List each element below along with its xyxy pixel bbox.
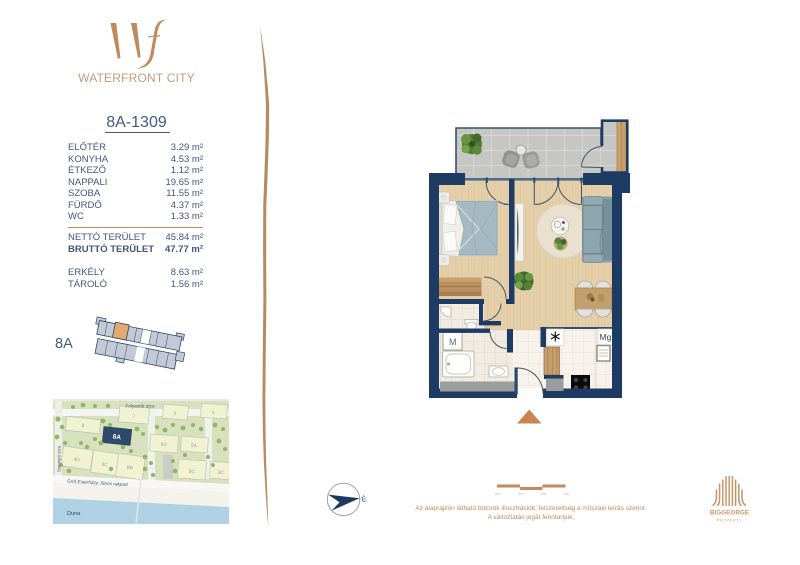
svg-text:3C: 3C [218, 470, 225, 476]
svg-text:M: M [449, 337, 457, 347]
svg-text:Folyamőr utca: Folyamőr utca [125, 404, 155, 409]
svg-text:Duna: Duna [67, 511, 81, 517]
svg-text:0m: 0m [495, 491, 501, 496]
svg-text:PROPERTY: PROPERTY [717, 518, 742, 523]
svg-text:2m: 2m [541, 491, 547, 496]
svg-text:BIGGEORGE: BIGGEORGE [710, 510, 749, 517]
svg-text:6C: 6C [189, 469, 196, 475]
svg-text:É: É [360, 494, 367, 504]
svg-text:Mg: Mg [600, 332, 612, 342]
svg-text:3m: 3m [564, 491, 570, 496]
svg-text:Sorompó utca: Sorompó utca [57, 445, 62, 472]
svg-text:1m: 1m [518, 491, 524, 496]
svg-text:8B: 8B [126, 465, 133, 472]
svg-text:8A: 8A [112, 434, 121, 442]
svg-text:6D: 6D [161, 442, 168, 448]
